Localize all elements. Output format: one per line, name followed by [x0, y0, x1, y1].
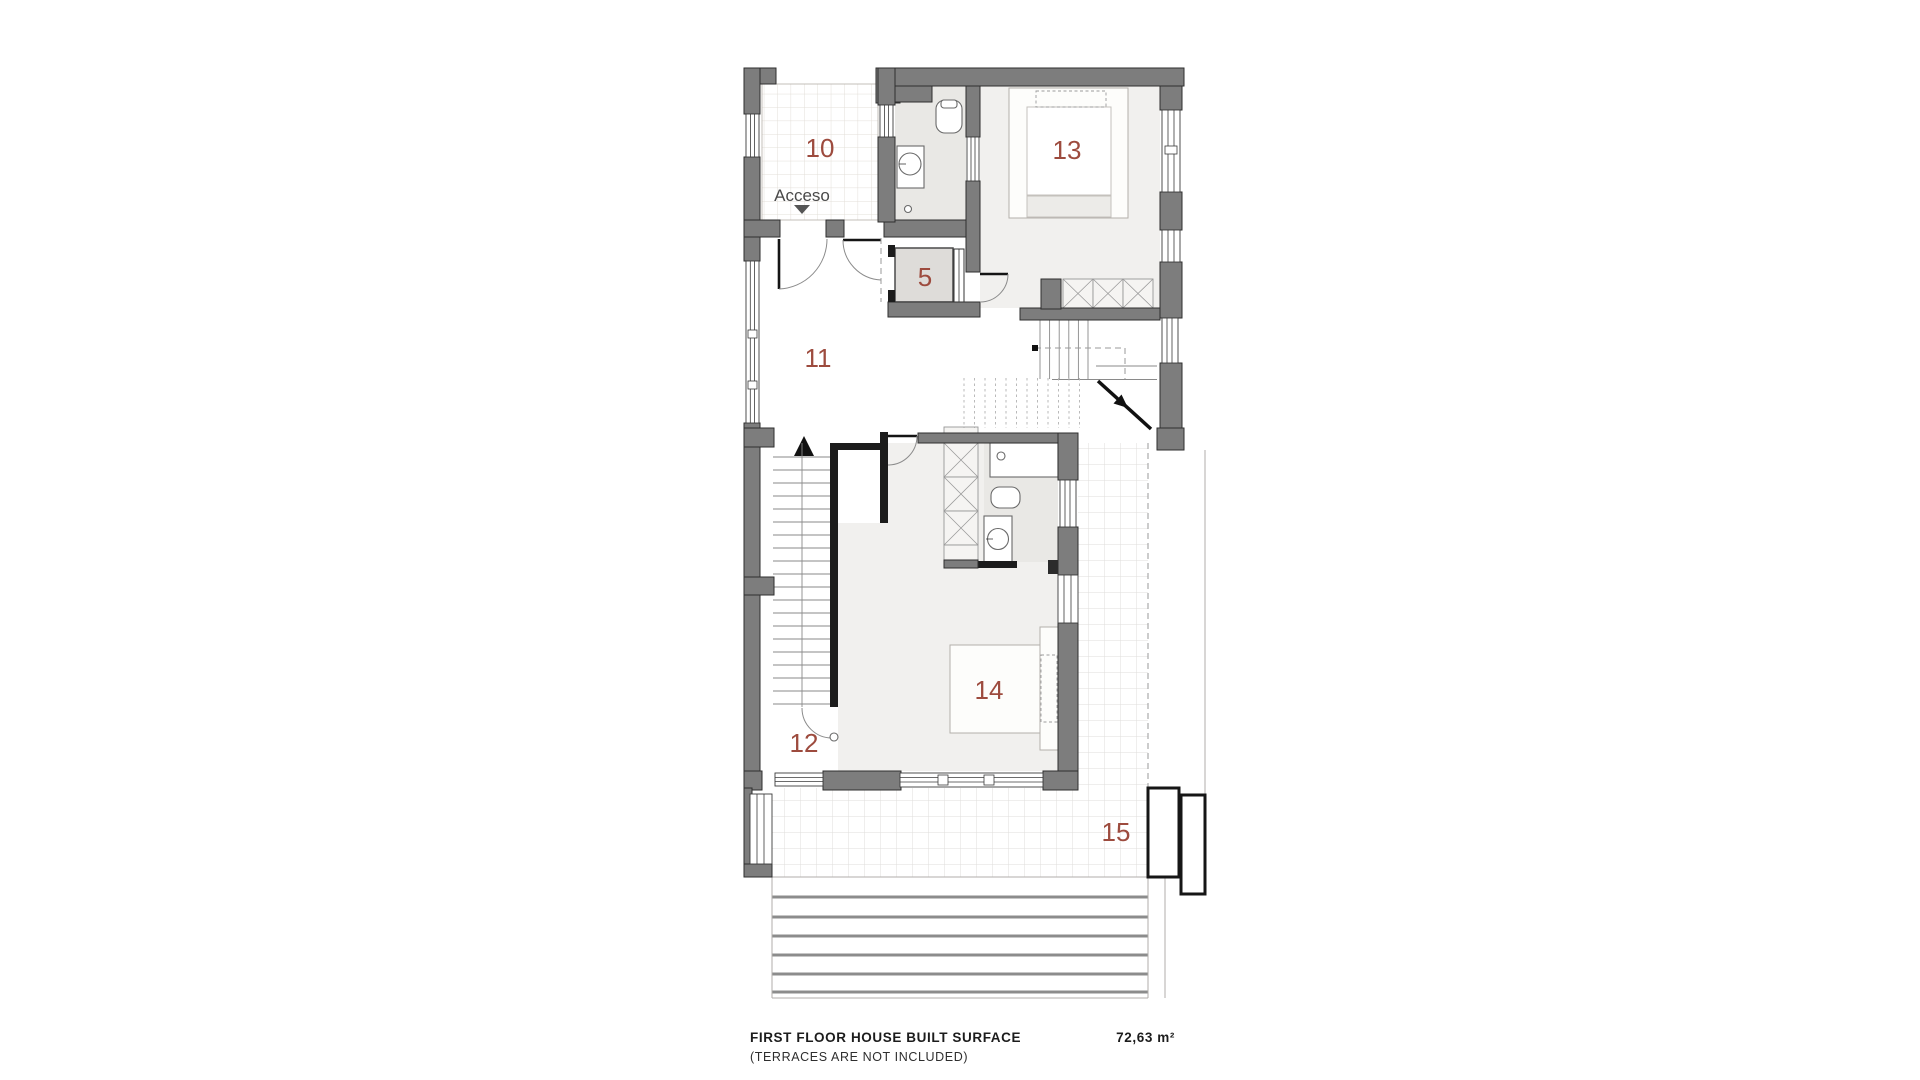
under-stair-dashed-treads [964, 378, 1080, 428]
staircase-lower [773, 436, 830, 707]
door-jamb [1048, 560, 1058, 574]
room-label-11: 11 [805, 343, 832, 373]
room-label-12: 12 [790, 728, 819, 758]
room-label-15: 15 [1102, 817, 1131, 847]
room-label-13: 13 [1053, 135, 1082, 165]
room-label-5: 5 [918, 262, 932, 292]
access-label: Acceso [774, 186, 830, 205]
bed-13-foot [1027, 196, 1111, 217]
window [1162, 318, 1178, 363]
window [746, 114, 759, 157]
window [746, 261, 759, 423]
floor-plan-page: 10 13 5 11 12 14 15 Acceso FIRST FLOOR H… [0, 0, 1920, 1080]
window [775, 773, 823, 786]
toilet-tank-icon [941, 100, 957, 108]
footer: FIRST FLOOR HOUSE BUILT SURFACE (TERRACE… [750, 1030, 1175, 1064]
window [1162, 230, 1180, 262]
stair-start-marker [1032, 345, 1038, 351]
floor-plan-canvas: 10 13 5 11 12 14 15 Acceso FIRST FLOOR H… [0, 0, 1920, 1080]
sliding-door [977, 561, 1017, 568]
stair-up-arrow-icon [794, 436, 814, 456]
toilet-14-icon [991, 487, 1020, 508]
entrance-door [779, 239, 827, 289]
upper-stair-treads [1040, 320, 1088, 379]
step-edges [772, 897, 1148, 992]
shower-drain-icon [997, 452, 1005, 460]
hall-door [843, 238, 881, 302]
terrace-15-tiles [772, 788, 1148, 877]
terrace-parapet-2 [1181, 795, 1205, 894]
stair-side-wall [830, 443, 838, 707]
window [1058, 575, 1078, 623]
window [1060, 480, 1076, 527]
drain-icon [905, 206, 912, 213]
footer-title: FIRST FLOOR HOUSE BUILT SURFACE [750, 1030, 1021, 1045]
terrace-parapet-1 [1148, 788, 1179, 877]
window [900, 773, 1043, 787]
footer-area-value: 72,63 m² [1116, 1030, 1175, 1045]
room-label-14: 14 [975, 675, 1004, 705]
exterior-steps [772, 877, 1165, 998]
footer-subtitle: (TERRACES ARE NOT INCLUDED) [750, 1050, 968, 1064]
staircase-upper [964, 320, 1157, 429]
wardrobe-14 [944, 427, 978, 560]
room-label-10: 10 [806, 133, 835, 163]
wardrobe-13 [1063, 279, 1153, 308]
bed-14 [950, 627, 1060, 750]
window [750, 794, 772, 864]
window [1162, 110, 1180, 192]
side-terrace-tiles [1078, 443, 1148, 788]
window [967, 137, 979, 181]
lower-stair-treads [773, 457, 830, 704]
window [880, 105, 893, 137]
